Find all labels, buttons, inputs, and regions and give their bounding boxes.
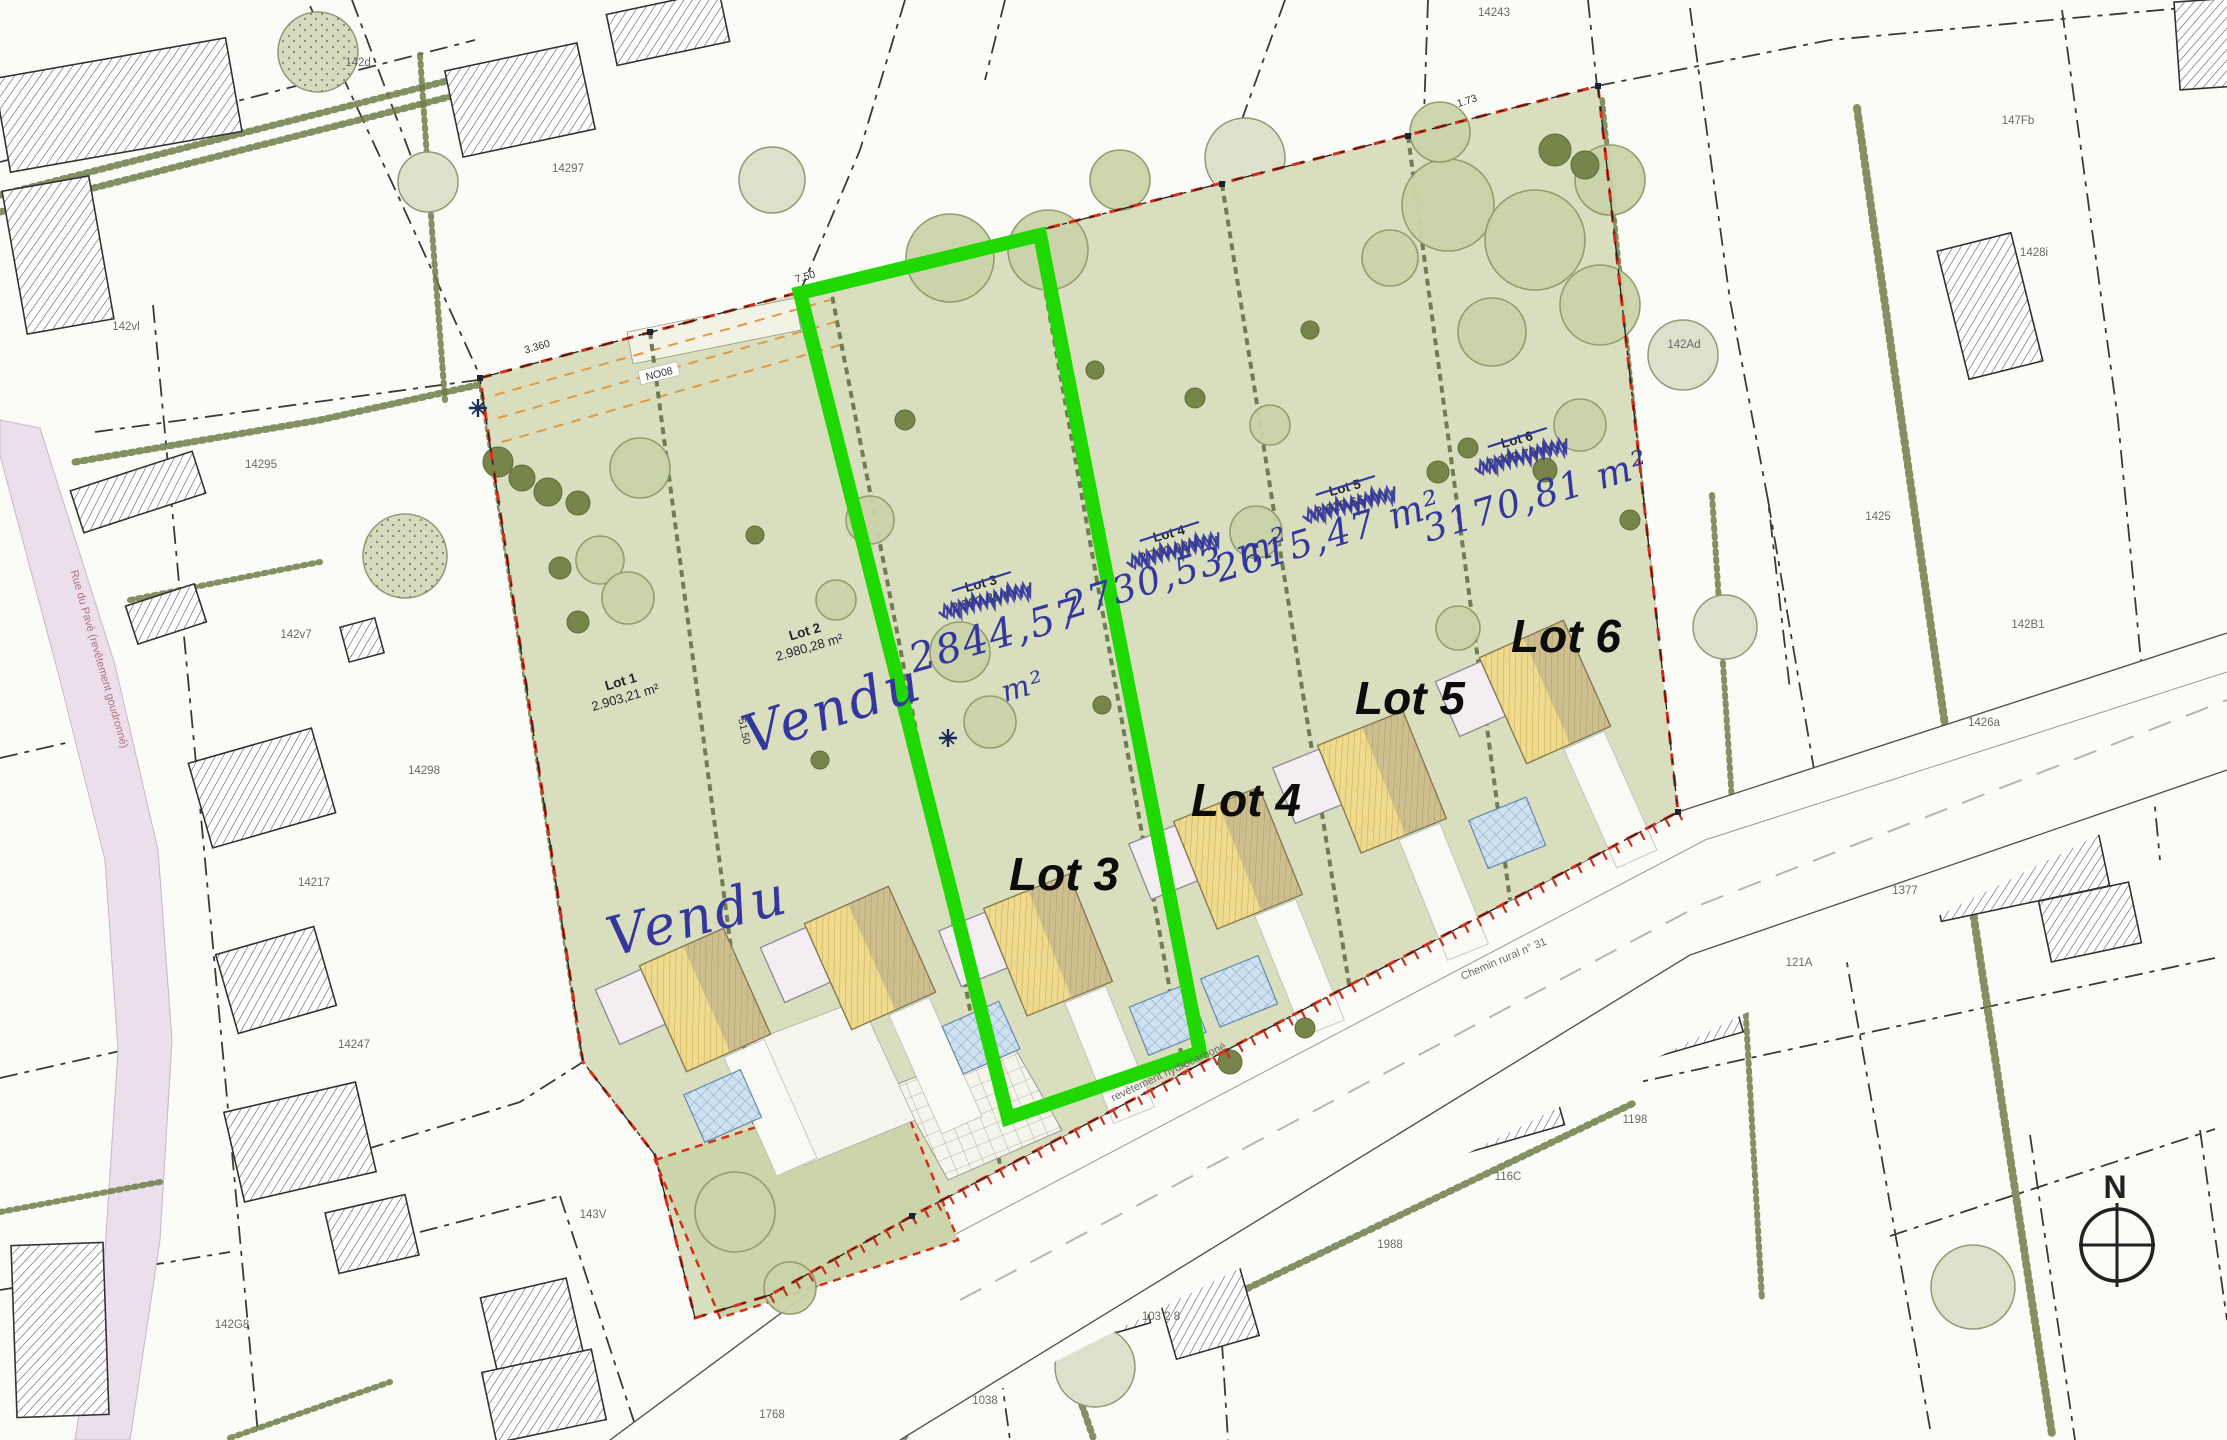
compass-north-label: N — [2103, 1169, 2126, 1205]
tree — [764, 1262, 816, 1314]
tree — [610, 438, 670, 498]
bush — [483, 447, 513, 477]
parcel-number: 142v7 — [280, 629, 311, 641]
cadastral-site-plan: Lot 12.903,21 m²Lot 22.980,28 m²Lot 32.5… — [0, 0, 2227, 1440]
boundary-vertex-marker — [1595, 83, 1601, 89]
hatched-building — [11, 1242, 109, 1417]
boundary-vertex-marker — [647, 329, 653, 335]
bush — [1571, 151, 1599, 179]
parcel-number: 142d — [345, 57, 371, 69]
parcel-number: 142G8 — [215, 1319, 250, 1331]
bush — [1458, 438, 1478, 458]
tree — [1931, 1245, 2015, 1329]
bush — [534, 478, 562, 506]
tree — [695, 1172, 775, 1252]
tree — [363, 514, 447, 598]
bush — [1539, 134, 1571, 166]
lot-big-label: Lot 6 — [1511, 610, 1621, 662]
bush — [567, 611, 589, 633]
lot-big-label: Lot 4 — [1191, 774, 1301, 826]
bush — [811, 751, 829, 769]
bush — [509, 465, 535, 491]
tree — [1458, 298, 1526, 366]
parcel-number: 1377 — [1892, 885, 1918, 897]
bush — [1086, 361, 1104, 379]
boundary-vertex-marker — [1405, 133, 1411, 139]
boundary-vertex-marker — [477, 375, 483, 381]
parcel-number: 14295 — [245, 459, 277, 471]
hatched-building — [2174, 0, 2227, 90]
tree — [1436, 606, 1480, 650]
tree — [1250, 405, 1290, 445]
boundary-vertex-marker — [1219, 181, 1225, 187]
parcel-number: 1426a — [1968, 717, 2001, 729]
tree — [1560, 265, 1640, 345]
bush — [1295, 1018, 1315, 1038]
parcel-number: 14217 — [298, 877, 330, 889]
tree — [602, 572, 654, 624]
tree — [1362, 230, 1418, 286]
bush — [1301, 321, 1319, 339]
parcel-number: 147Fb — [2002, 115, 2035, 127]
tree — [1693, 595, 1757, 659]
parcel-number: 116C — [1495, 1171, 1522, 1183]
parcel-number: 142B1 — [2011, 619, 2044, 631]
bush — [549, 557, 571, 579]
bush — [1093, 696, 1111, 714]
boundary-vertex-marker — [909, 1213, 915, 1219]
tree — [398, 152, 458, 212]
parcel-number: 121A — [1786, 957, 1813, 969]
tree — [278, 12, 358, 92]
parcel-number: 103 2 8 — [1142, 1311, 1180, 1323]
bush — [1185, 388, 1205, 408]
parcel-number: 14243 — [1478, 7, 1510, 19]
tree — [1648, 320, 1718, 390]
bush — [1427, 461, 1449, 483]
parcel-number: 14247 — [338, 1039, 370, 1051]
parcel-number: 1768 — [759, 1409, 785, 1421]
lot-big-label: Lot 5 — [1355, 672, 1466, 724]
parcel-number: 1988 — [1377, 1239, 1403, 1251]
bush — [566, 491, 590, 515]
parcel-number: 14298 — [408, 765, 440, 777]
tree — [1090, 150, 1150, 210]
parcel-number: 1198 — [1623, 1114, 1648, 1126]
parcel-number: 14297 — [552, 163, 584, 175]
tree — [816, 580, 856, 620]
tree — [739, 147, 805, 213]
parcel-number: 1428i — [2020, 247, 2048, 259]
boundary-vertex-marker — [1675, 809, 1681, 815]
parcel-number: 1425 — [1865, 511, 1891, 523]
parcel-number: 142vl — [112, 321, 140, 333]
bush — [1620, 510, 1640, 530]
bush — [746, 526, 764, 544]
lot-big-label: Lot 3 — [1009, 848, 1119, 900]
parcel-number: 143V — [580, 1209, 607, 1221]
bush — [895, 410, 915, 430]
parcel-number: 142Ad — [1667, 339, 1700, 351]
parcel-number: 1038 — [972, 1395, 998, 1407]
tree — [1485, 190, 1585, 290]
tree — [1402, 159, 1494, 251]
